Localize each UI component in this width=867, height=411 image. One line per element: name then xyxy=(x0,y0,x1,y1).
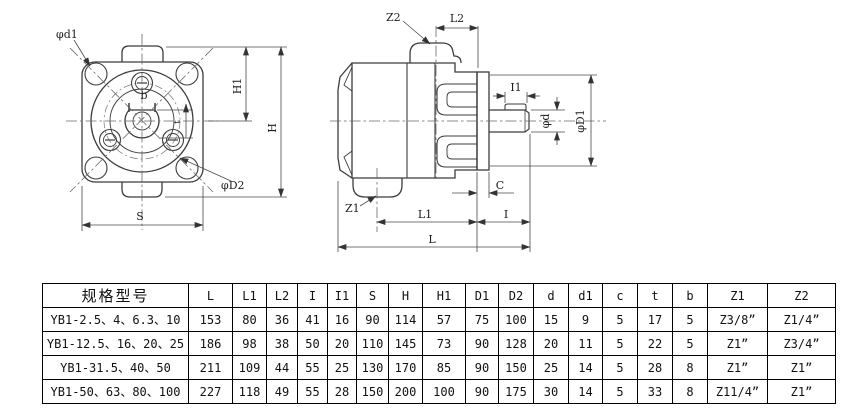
dim-label-b: b xyxy=(140,89,147,102)
corner-hole xyxy=(85,157,107,179)
col-header: D1 xyxy=(466,284,499,308)
value-cell: 90 xyxy=(357,308,389,332)
value-cell: Z11/4” xyxy=(708,380,768,404)
value-cell: 100 xyxy=(499,308,534,332)
pump-dimension-drawing: φd1 b t H1 H φD2 S xyxy=(0,0,867,276)
value-cell: 85 xyxy=(423,356,466,380)
dim-label-z2: Z2 xyxy=(386,11,401,24)
value-cell: 80 xyxy=(233,308,267,332)
col-header: Z2 xyxy=(768,284,836,308)
value-cell: 41 xyxy=(298,308,328,332)
value-cell: 28 xyxy=(328,380,357,404)
col-header: D2 xyxy=(499,284,534,308)
model-cell: YB1-31.5、40、50 xyxy=(43,356,189,380)
corner-hole xyxy=(176,157,198,179)
value-cell: 38 xyxy=(267,332,298,356)
value-cell: 50 xyxy=(298,332,328,356)
col-header: Z1 xyxy=(708,284,768,308)
spec-row: YB1-2.5、4、6.3、10153803641169011457751001… xyxy=(43,308,836,332)
model-cell: YB1-12.5、16、20、25 xyxy=(43,332,189,356)
value-cell: 5 xyxy=(603,380,638,404)
value-cell: 114 xyxy=(389,308,423,332)
value-cell: 11 xyxy=(569,332,603,356)
value-cell: 150 xyxy=(499,356,534,380)
value-cell: 200 xyxy=(389,380,423,404)
dim-label-phi-d2: φD2 xyxy=(221,179,245,192)
value-cell: 128 xyxy=(499,332,534,356)
value-cell: 20 xyxy=(534,332,569,356)
col-header-model: 规格型号 xyxy=(43,284,189,308)
value-cell: 8 xyxy=(673,380,708,404)
model-cell: YB1-2.5、4、6.3、10 xyxy=(43,308,189,332)
value-cell: Z1” xyxy=(768,356,836,380)
value-cell: Z1” xyxy=(768,380,836,404)
value-cell: 90 xyxy=(466,332,499,356)
value-cell: 73 xyxy=(423,332,466,356)
value-cell: 98 xyxy=(233,332,267,356)
value-cell: 145 xyxy=(389,332,423,356)
value-cell: 153 xyxy=(189,308,233,332)
value-cell: 14 xyxy=(569,380,603,404)
value-cell: 9 xyxy=(569,308,603,332)
value-cell: 55 xyxy=(298,380,328,404)
dim-label-l1: L1 xyxy=(418,208,432,221)
value-cell: 186 xyxy=(189,332,233,356)
value-cell: 28 xyxy=(638,356,673,380)
port-counterbore-inner xyxy=(447,144,477,159)
value-cell: 118 xyxy=(233,380,267,404)
col-header: I xyxy=(298,284,328,308)
header-row: 规格型号LL1L2II1SHH1D1D2dd1ctbZ1Z2 xyxy=(43,284,836,308)
value-cell: 22 xyxy=(638,332,673,356)
value-cell: 170 xyxy=(389,356,423,380)
bottom-port-boss-z1 xyxy=(353,178,402,197)
col-header: b xyxy=(673,284,708,308)
dim-label-i: I xyxy=(504,208,508,221)
value-cell: 90 xyxy=(466,356,499,380)
shaft-key xyxy=(505,104,526,110)
value-cell: 100 xyxy=(423,380,466,404)
dim-label-l: L xyxy=(428,233,436,246)
value-cell: 30 xyxy=(534,380,569,404)
value-cell: Z1/4” xyxy=(768,308,836,332)
value-cell: 36 xyxy=(267,308,298,332)
col-header: L2 xyxy=(267,284,298,308)
rear-cover-detail xyxy=(344,151,352,175)
top-mounting-tab xyxy=(122,46,163,62)
value-cell: Z3/4” xyxy=(768,332,836,356)
value-cell: 25 xyxy=(328,356,357,380)
value-cell: 175 xyxy=(499,380,534,404)
spec-table-body: YB1-2.5、4、6.3、10153803641169011457751001… xyxy=(43,308,836,404)
value-cell: 110 xyxy=(357,332,389,356)
value-cell: 25 xyxy=(534,356,569,380)
dim-label-h: H xyxy=(266,123,279,133)
value-cell: 8 xyxy=(673,356,708,380)
value-cell: 44 xyxy=(267,356,298,380)
value-cell: 15 xyxy=(534,308,569,332)
dim-label-z1: Z1 xyxy=(345,202,360,215)
value-cell: 16 xyxy=(328,308,357,332)
value-cell: Z3/8” xyxy=(708,308,768,332)
value-cell: 227 xyxy=(189,380,233,404)
pump-catalog-page: φd1 b t H1 H φD2 S xyxy=(0,0,867,411)
col-header: S xyxy=(357,284,389,308)
pump-body-outline xyxy=(352,63,477,178)
value-cell: 5 xyxy=(603,332,638,356)
value-cell: 90 xyxy=(466,380,499,404)
port-counterbore xyxy=(437,136,477,167)
col-header: L1 xyxy=(233,284,267,308)
dim-label-h1: H1 xyxy=(231,78,244,95)
bolt-head xyxy=(163,130,184,151)
dim-label-t: t xyxy=(173,120,183,124)
col-header: H xyxy=(389,284,423,308)
value-cell: Z1” xyxy=(708,356,768,380)
value-cell: 49 xyxy=(267,380,298,404)
value-cell: 14 xyxy=(569,356,603,380)
dim-label-l2: L2 xyxy=(450,12,464,25)
col-header: H1 xyxy=(423,284,466,308)
top-port-boss-z2 xyxy=(410,43,461,63)
col-header: L xyxy=(189,284,233,308)
value-cell: Z1” xyxy=(708,332,768,356)
value-cell: 5 xyxy=(603,356,638,380)
value-cell: 150 xyxy=(357,380,389,404)
dim-label-phi-d: φd xyxy=(539,114,552,129)
spec-row: YB1-31.5、40、5021110944552513017085901502… xyxy=(43,356,836,380)
value-cell: 130 xyxy=(357,356,389,380)
port-counterbore xyxy=(437,84,477,115)
spec-table-head: 规格型号LL1L2II1SHH1D1D2dd1ctbZ1Z2 xyxy=(43,284,836,308)
spec-row: YB1-12.5、16、20、2518698385020110145739012… xyxy=(43,332,836,356)
port-counterbore-inner xyxy=(447,92,477,107)
value-cell: 55 xyxy=(298,356,328,380)
value-cell: 5 xyxy=(673,308,708,332)
col-header: d1 xyxy=(569,284,603,308)
value-cell: 20 xyxy=(328,332,357,356)
value-cell: 109 xyxy=(233,356,267,380)
value-cell: 17 xyxy=(638,308,673,332)
side-view-centerlines xyxy=(330,26,606,232)
dim-label-s: S xyxy=(136,210,144,223)
spec-table: 规格型号LL1L2II1SHH1D1D2dd1ctbZ1Z2 YB1-2.5、4… xyxy=(42,283,836,404)
model-cell: YB1-50、63、80、100 xyxy=(43,380,189,404)
value-cell: 75 xyxy=(466,308,499,332)
value-cell: 57 xyxy=(423,308,466,332)
side-view xyxy=(338,43,529,197)
col-header: I1 xyxy=(328,284,357,308)
col-header: c xyxy=(603,284,638,308)
spec-row: YB1-50、63、80、100227118495528150200100901… xyxy=(43,380,836,404)
dim-label-phi-d1-pilot: φD1 xyxy=(574,109,587,133)
dim-label-i1: I1 xyxy=(510,81,521,94)
rear-cover xyxy=(338,63,352,178)
dim-label-c: C xyxy=(496,179,504,192)
value-cell: 211 xyxy=(189,356,233,380)
dim-label-phi-d1: φd1 xyxy=(56,28,78,41)
value-cell: 5 xyxy=(603,308,638,332)
col-header: t xyxy=(638,284,673,308)
bolt-head xyxy=(100,130,121,151)
value-cell: 5 xyxy=(673,332,708,356)
value-cell: 33 xyxy=(638,380,673,404)
col-header: d xyxy=(534,284,569,308)
